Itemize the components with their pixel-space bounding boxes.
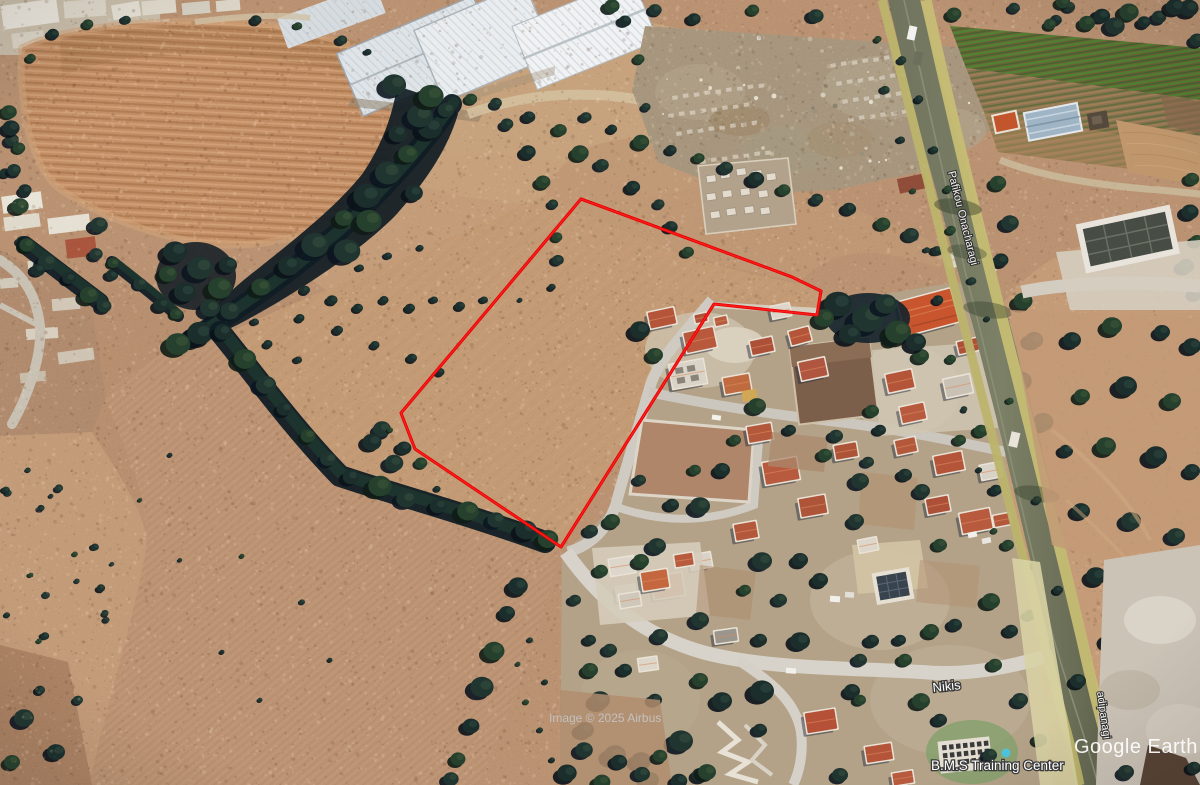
svg-text:Image © 2025 Airbus: Image © 2025 Airbus [549,711,661,725]
svg-text:Google Earth: Google Earth [1074,736,1198,758]
svg-text:B.M.S Training Center: B.M.S Training Center [931,758,1064,773]
svg-text:Nikis: Nikis [932,677,962,695]
